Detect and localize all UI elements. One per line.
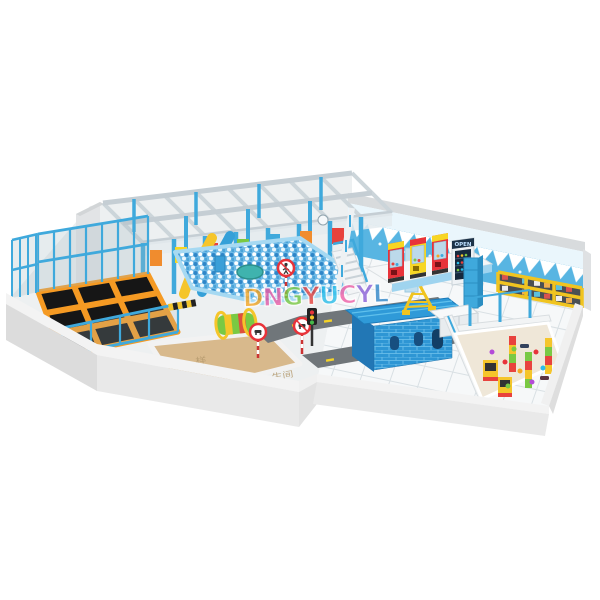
right-end-wall [583, 249, 591, 311]
toy-car [540, 376, 549, 380]
claw-machine-red-1 [388, 241, 404, 283]
open-sign: OPEN [454, 242, 471, 248]
island-platform [237, 265, 263, 279]
watermark-text: DNGYUCYL [242, 278, 403, 324]
wrapped-column [509, 336, 516, 372]
toy-car [520, 344, 529, 348]
husky-figure [318, 215, 328, 225]
pit-post [215, 256, 225, 272]
arch-window [414, 332, 423, 346]
wrapped-column [545, 338, 552, 374]
arch-window [390, 336, 399, 350]
playground-render: 样 生间 [0, 0, 600, 600]
blue-locker [464, 255, 483, 308]
claw-machine-red-2 [432, 233, 448, 275]
claw-machine-yellow [410, 237, 426, 279]
kiddie-ride-1 [483, 360, 498, 381]
